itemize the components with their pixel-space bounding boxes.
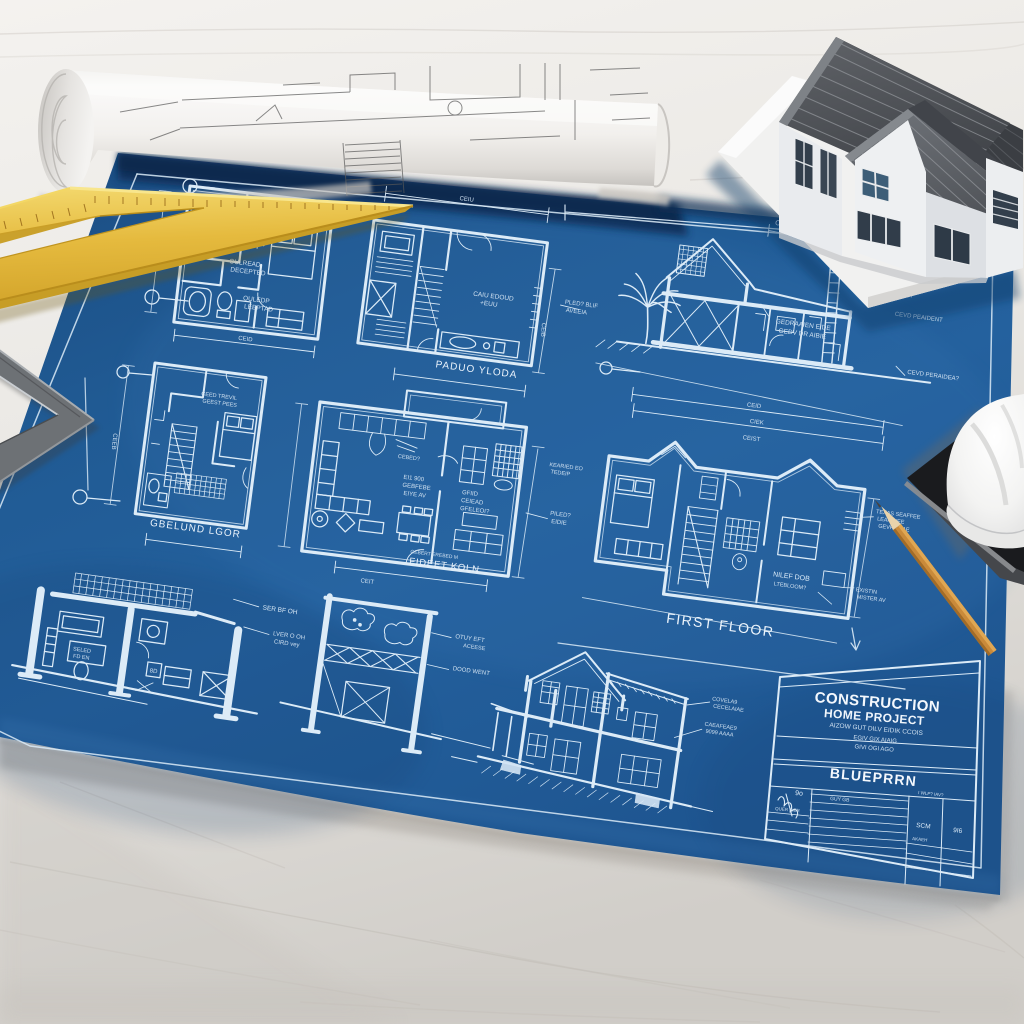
svg-text:CEIB: CEIB [539,323,546,337]
svg-text:9I6: 9I6 [953,827,963,835]
svg-text:8D: 8D [149,668,158,675]
svg-text:9o: 9o [795,790,803,798]
